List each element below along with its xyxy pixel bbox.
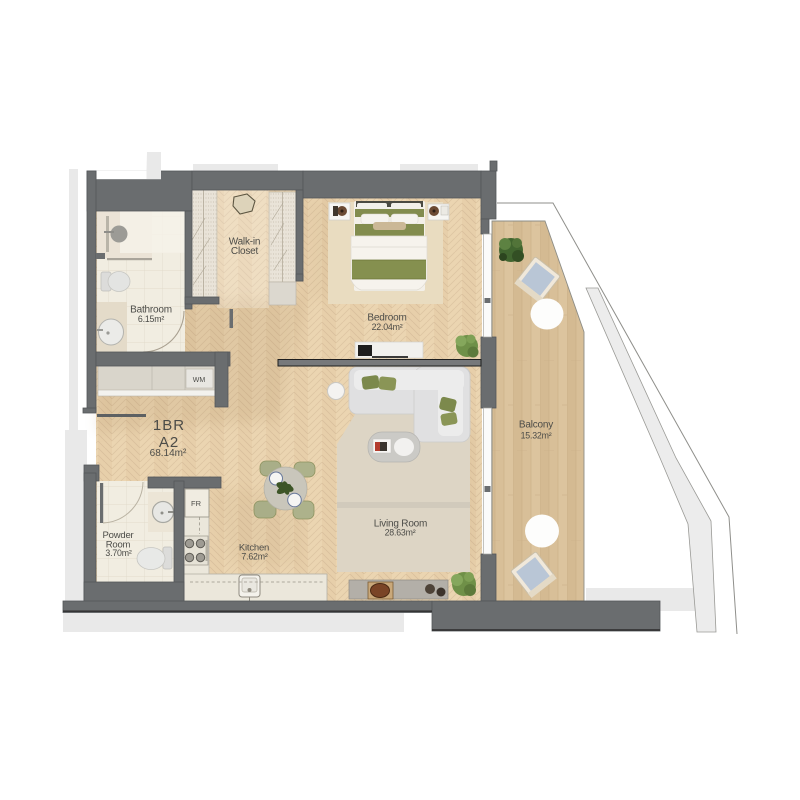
svg-text:3.70m²: 3.70m² [105,548,131,558]
svg-text:Closet: Closet [231,246,259,257]
svg-text:22.04m²: 22.04m² [372,322,403,332]
svg-text:15.32m²: 15.32m² [521,431,552,441]
svg-text:1BR: 1BR [153,417,185,434]
svg-text:28.63m²: 28.63m² [385,528,416,538]
svg-text:Balcony: Balcony [519,420,553,431]
svg-text:FR: FR [191,499,202,508]
svg-text:WM: WM [193,377,206,384]
svg-text:68.14m²: 68.14m² [150,448,187,459]
svg-text:7.62m²: 7.62m² [241,552,267,562]
svg-text:6.15m²: 6.15m² [138,314,164,324]
